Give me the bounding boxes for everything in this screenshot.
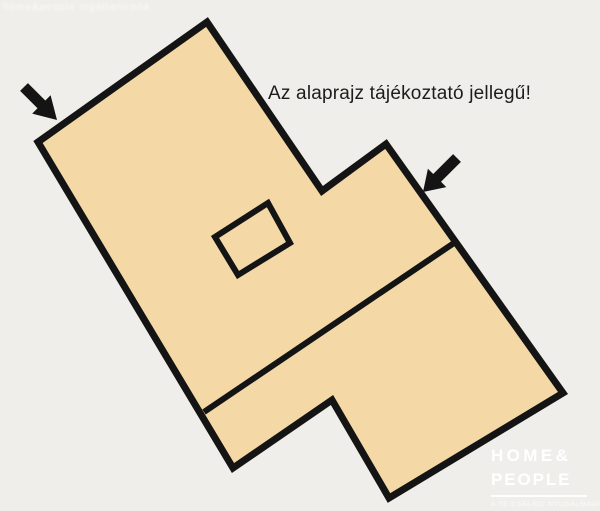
logo-divider xyxy=(491,495,587,497)
logo-tagline: A TE CSALÁDI NYUGALMADHOZ xyxy=(491,501,591,508)
logo-text-line2: PEOPLE xyxy=(491,468,591,492)
logo-text-line1: HOME& xyxy=(491,444,591,468)
disclaimer-text: Az alaprajz tájékoztató jellegű! xyxy=(268,83,531,105)
watermark-text: home&people ingatlaniroda xyxy=(3,2,150,13)
agency-logo: HOME& PEOPLE A TE CSALÁDI NYUGALMADHOZ xyxy=(491,444,591,508)
arrow-icon-top-left xyxy=(20,83,57,120)
arrow-icon-right xyxy=(423,154,461,192)
listing-floorplan-image: home&people ingatlaniroda Az alaprajz tá… xyxy=(0,0,600,511)
floorplan-drawing xyxy=(0,0,600,511)
